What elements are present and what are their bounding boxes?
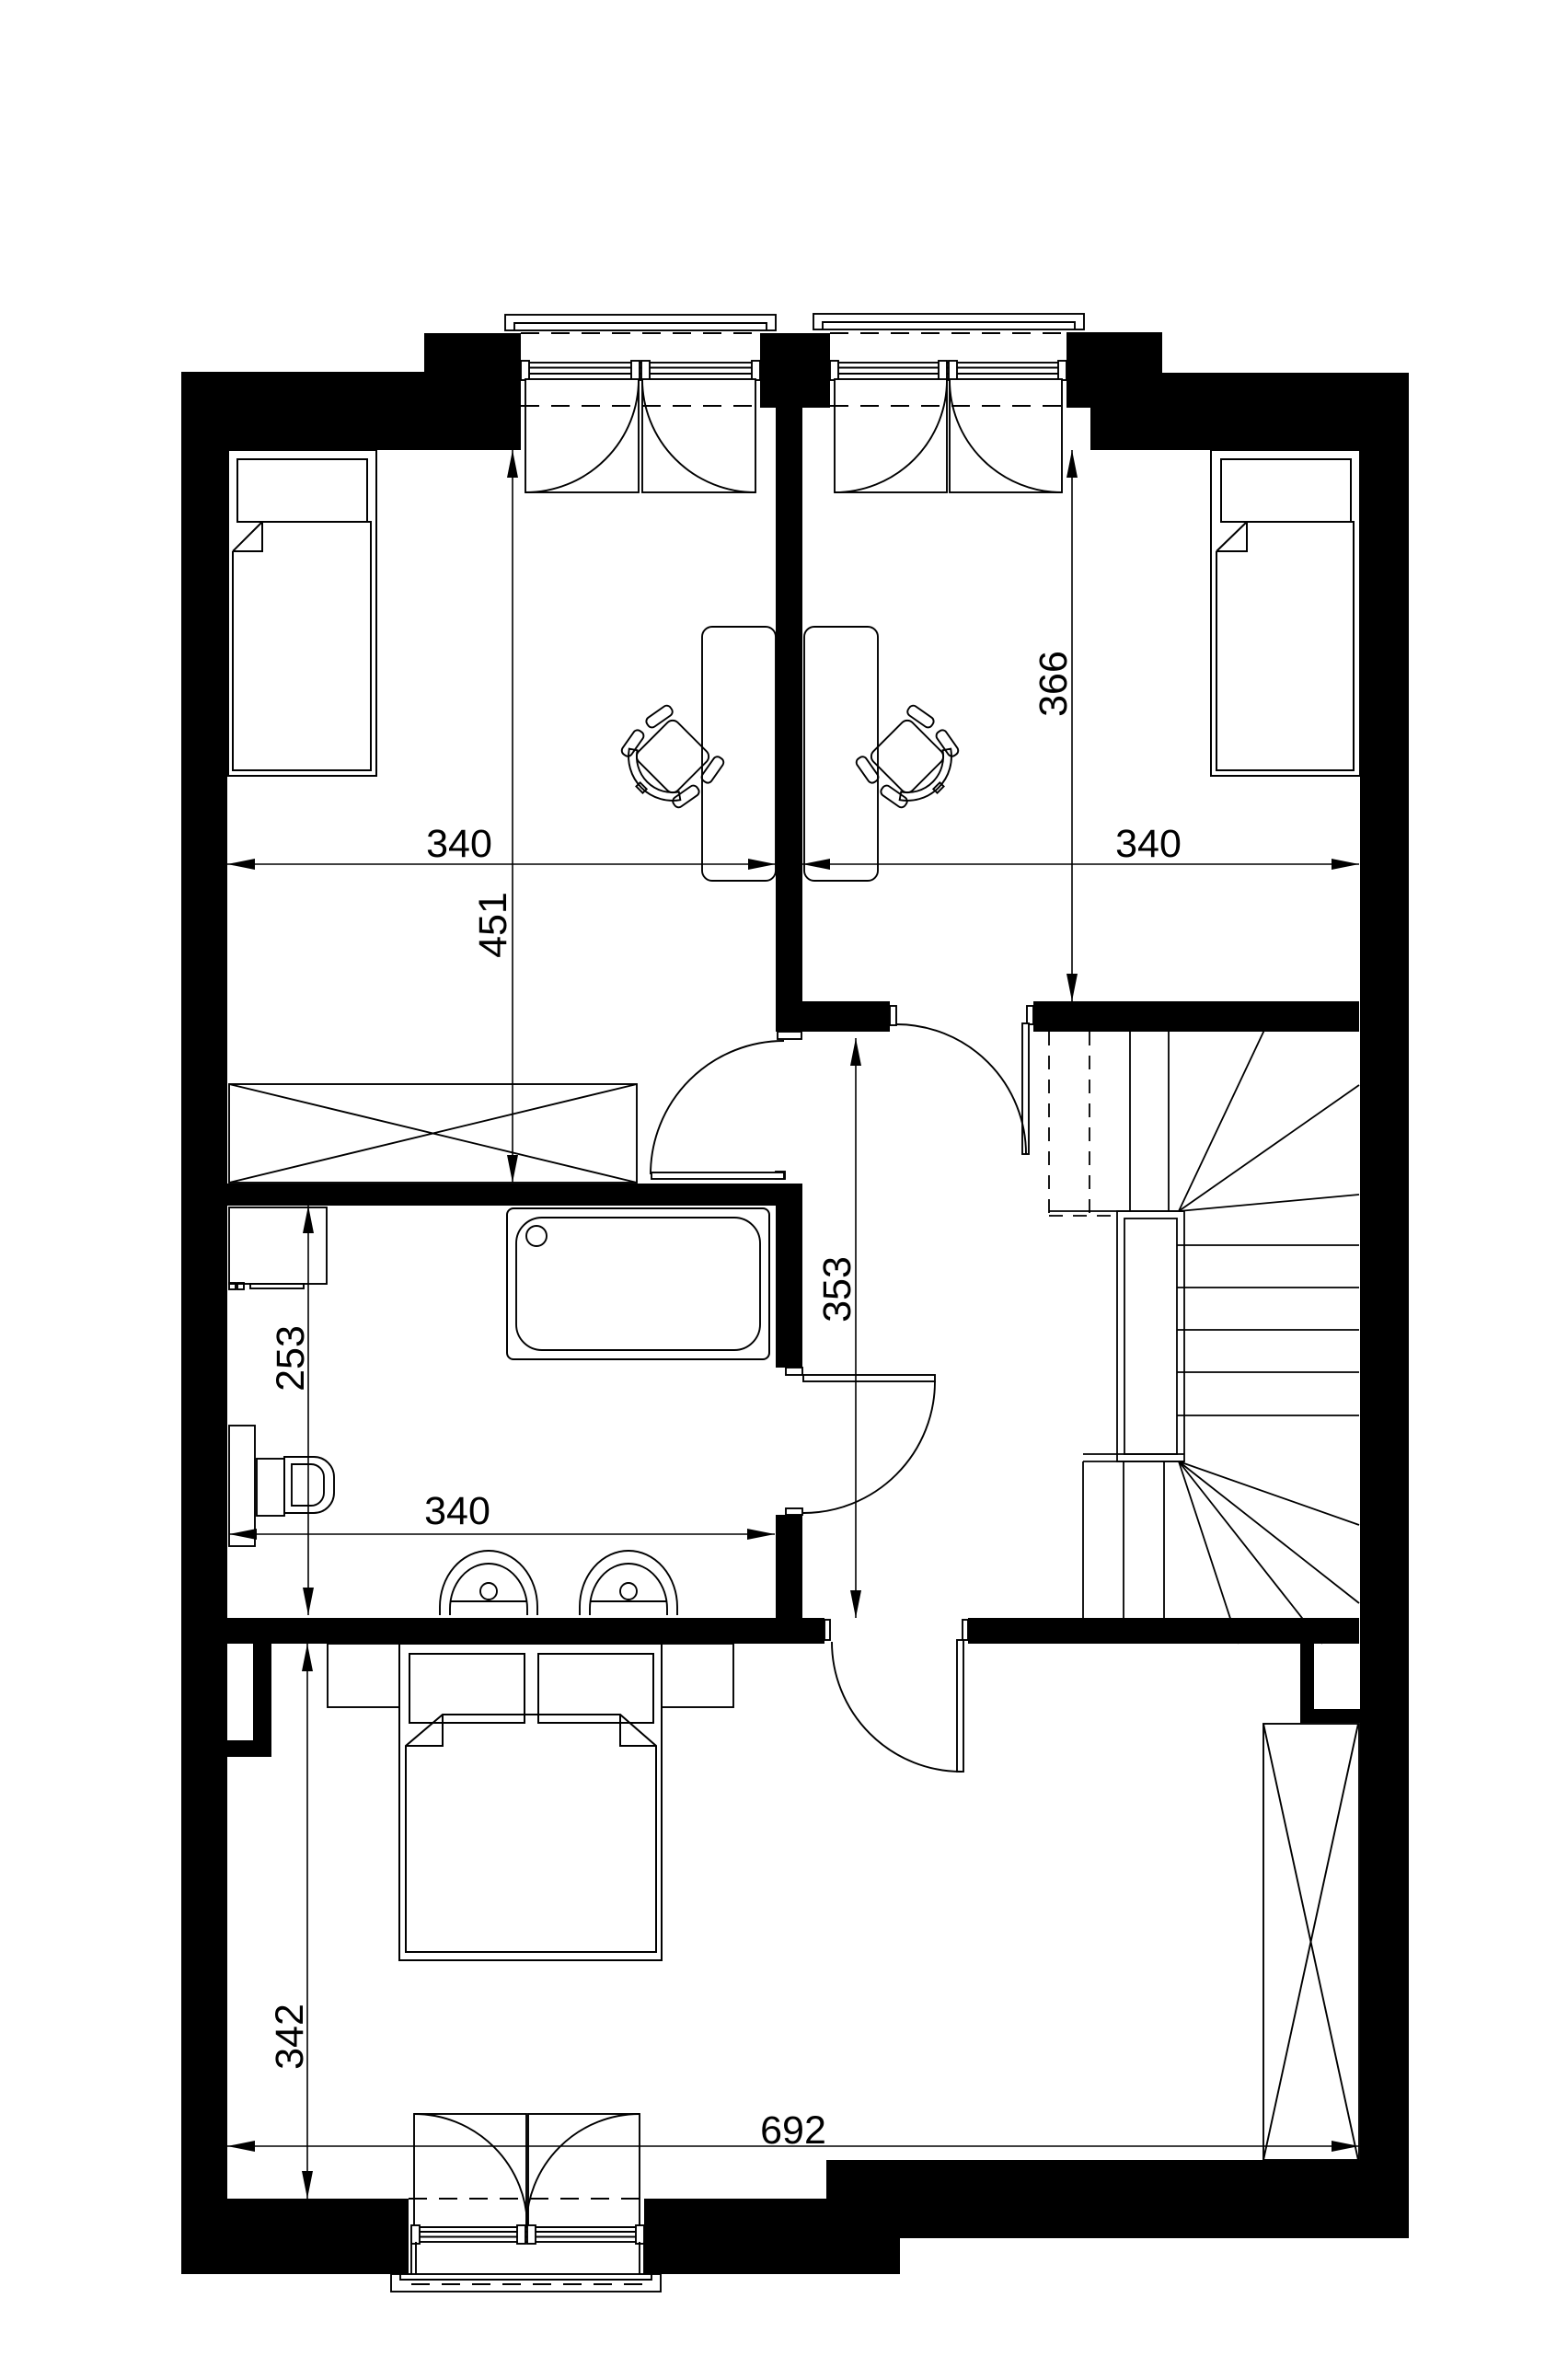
svg-text:340: 340 xyxy=(426,822,492,866)
svg-text:340: 340 xyxy=(1115,822,1182,866)
svg-text:342: 342 xyxy=(268,2004,312,2070)
svg-text:366: 366 xyxy=(1032,651,1076,717)
svg-text:451: 451 xyxy=(471,892,515,958)
svg-text:340: 340 xyxy=(424,1489,490,1533)
svg-text:253: 253 xyxy=(269,1325,313,1392)
svg-text:353: 353 xyxy=(815,1256,859,1322)
svg-text:692: 692 xyxy=(760,2108,826,2153)
